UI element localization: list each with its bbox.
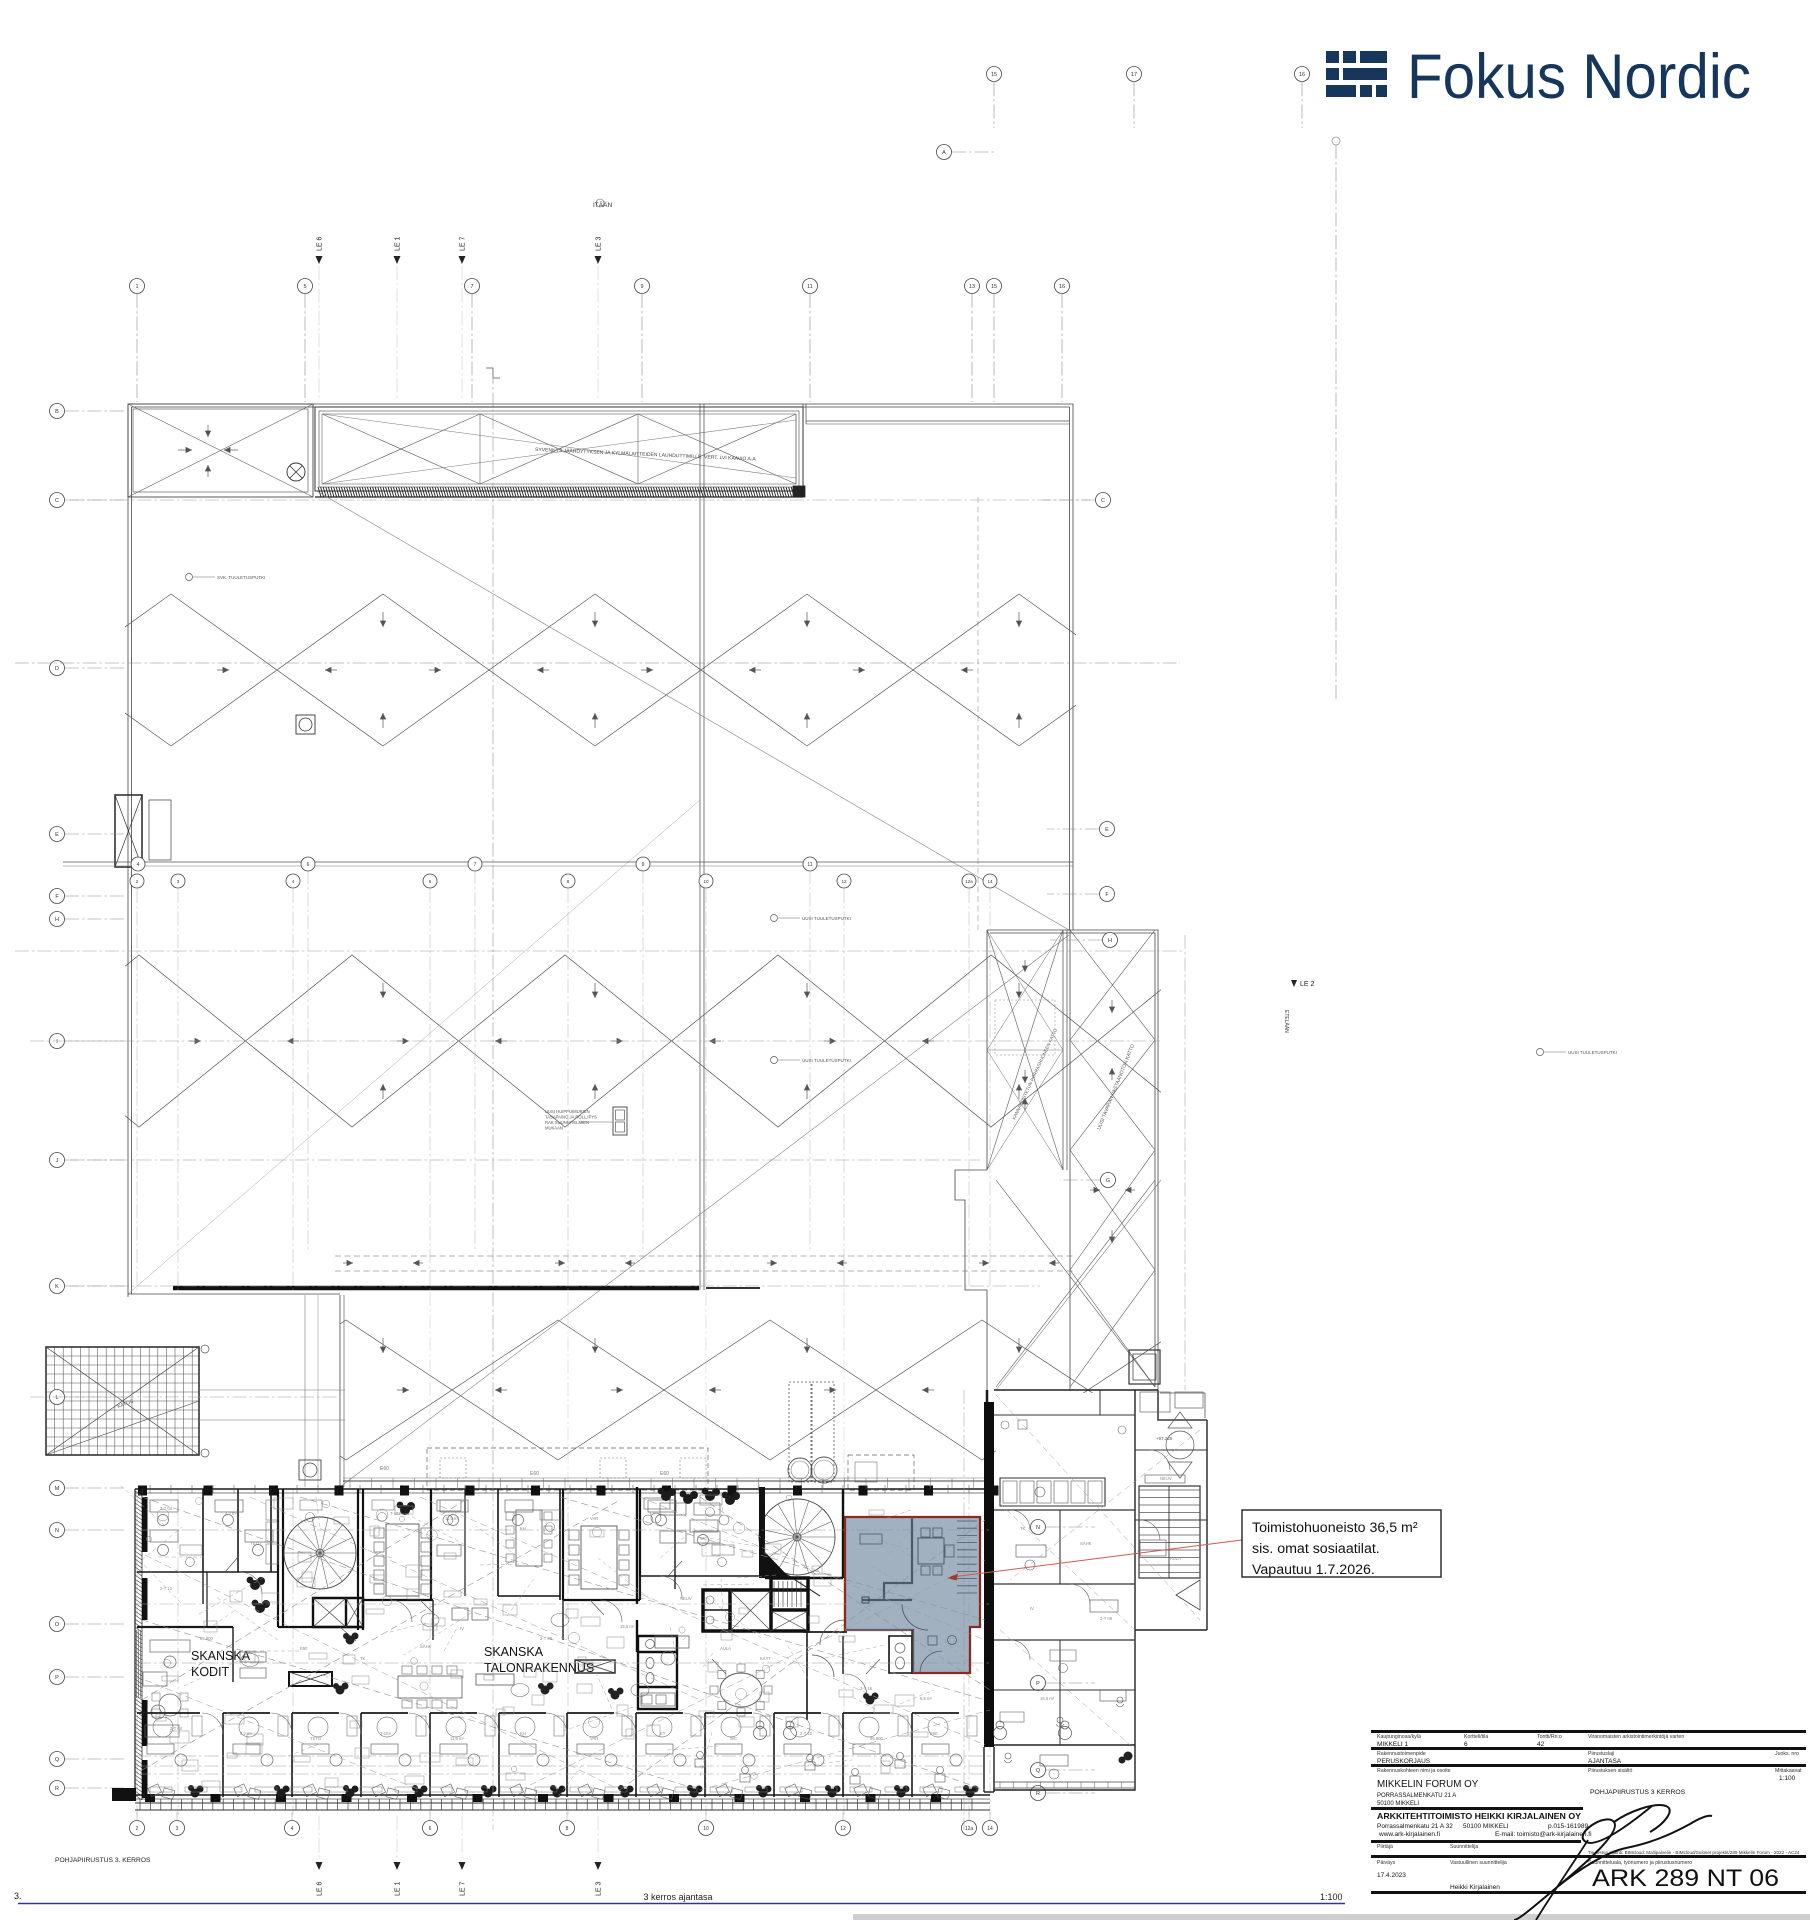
- svg-text:E90: E90: [300, 1646, 308, 1651]
- svg-text:2: 2: [136, 1826, 139, 1832]
- svg-text:ET: ET: [660, 1731, 666, 1736]
- svg-text:SÄHK: SÄHK: [420, 1644, 432, 1649]
- svg-text:1: 1: [135, 284, 138, 290]
- svg-text:3: 3: [177, 879, 180, 884]
- svg-text:Rakennuskohteen nimi ja osoite: Rakennuskohteen nimi ja osoite: [1377, 1768, 1451, 1774]
- svg-text:VAR: VAR: [590, 1516, 598, 1521]
- svg-text:PORRASSALMENKATU 21 A: PORRASSALMENKATU 21 A: [1377, 1793, 1456, 1799]
- svg-text:2: 2: [136, 879, 139, 884]
- svg-text:Juoks. nro: Juoks. nro: [1775, 1751, 1799, 1757]
- svg-text:SVK. TUULETUSPUTKI: SVK. TUULETUSPUTKI: [217, 575, 265, 580]
- svg-text:MIKKELIN FORUM OY: MIKKELIN FORUM OY: [1377, 1779, 1479, 1790]
- svg-text:95.800: 95.800: [870, 1736, 883, 1741]
- svg-text:E60: E60: [530, 1471, 539, 1477]
- svg-text:LE 1: LE 1: [395, 1881, 402, 1896]
- svg-text:C: C: [55, 498, 59, 504]
- svg-text:AULA: AULA: [1170, 1556, 1181, 1561]
- svg-text:15,5 m²: 15,5 m²: [1040, 1696, 1055, 1701]
- svg-text:15,5 m²: 15,5 m²: [620, 1624, 635, 1629]
- svg-text:LE 7: LE 7: [460, 236, 467, 251]
- svg-text:4: 4: [137, 862, 140, 868]
- svg-text:sis. omat sosiaatilat.: sis. omat sosiaatilat.: [1252, 1541, 1380, 1557]
- svg-text:T-103: T-103: [390, 1511, 401, 1516]
- svg-text:ARKKITEHTITOIMISTO HEIKKI KIRJ: ARKKITEHTITOIMISTO HEIKKI KIRJALAINEN OY: [1377, 1812, 1582, 1821]
- svg-text:MIKKELI 1: MIKKELI 1: [1377, 1741, 1408, 1748]
- svg-text:LE 6: LE 6: [317, 236, 324, 251]
- svg-text:UUSI TUULETUSPUTKI: UUSI TUULETUSPUTKI: [802, 916, 851, 921]
- svg-text:TSTO: TSTO: [310, 1736, 322, 1741]
- svg-text:Rakennustoimenpide: Rakennustoimenpide: [1377, 1751, 1426, 1757]
- svg-text:TASAPAINO JA ROLL.IPYS: TASAPAINO JA ROLL.IPYS: [545, 1115, 597, 1120]
- svg-text:E90: E90: [930, 1731, 938, 1736]
- svg-text:G: G: [1106, 1178, 1110, 1184]
- svg-text:2-T 16: 2-T 16: [860, 1686, 873, 1691]
- svg-text:10: 10: [703, 879, 709, 884]
- svg-text:14: 14: [987, 1826, 993, 1832]
- svg-text:4: 4: [291, 1826, 294, 1832]
- svg-text:Toimistohuoneisto 36,5 m²: Toimistohuoneisto 36,5 m²: [1252, 1520, 1418, 1536]
- svg-text:C: C: [1101, 498, 1105, 504]
- svg-text:16: 16: [1299, 72, 1305, 78]
- svg-text:D: D: [55, 666, 59, 672]
- svg-text:+97.225: +97.225: [1156, 1436, 1173, 1441]
- svg-text:Vastuullinen suunnittelija: Vastuullinen suunnittelija: [1450, 1860, 1507, 1866]
- svg-text:2-T 12: 2-T 12: [800, 1731, 813, 1736]
- svg-text:M: M: [55, 1486, 60, 1492]
- svg-text:T-103: T-103: [380, 1731, 391, 1736]
- svg-text:Piirustuksen sisältö: Piirustuksen sisältö: [1588, 1768, 1633, 1774]
- svg-text:2-T 04: 2-T 04: [170, 1726, 183, 1731]
- svg-text:42: 42: [1537, 1741, 1545, 1748]
- svg-text:Tiedoston sijainti: BIMcloud:: Tiedoston sijainti: BIMcloud: Mallipalve…: [1588, 1850, 1800, 1855]
- svg-text:6: 6: [1464, 1741, 1468, 1748]
- svg-text:Viranomaisten arkistointimerki: Viranomaisten arkistointimerkintöjä vart…: [1588, 1734, 1684, 1740]
- svg-text:Q: Q: [1036, 1768, 1041, 1774]
- svg-text:SÄHK: SÄHK: [1080, 1541, 1092, 1546]
- svg-text:UUSI HUIPPUIMURIEN: UUSI HUIPPUIMURIEN: [545, 1109, 590, 1114]
- svg-text:KÄYT: KÄYT: [760, 1656, 771, 1661]
- svg-text:12: 12: [840, 1826, 846, 1832]
- svg-text:2-T 08: 2-T 08: [540, 1636, 553, 1641]
- svg-text:10: 10: [703, 1826, 709, 1832]
- svg-text:KH: KH: [520, 1731, 526, 1736]
- svg-text:AULA: AULA: [720, 1646, 731, 1651]
- svg-text:TK: TK: [360, 1656, 366, 1661]
- svg-text:O: O: [55, 1622, 60, 1628]
- svg-text:P: P: [1036, 1681, 1040, 1687]
- svg-text:Suunnittelija: Suunnittelija: [1450, 1844, 1478, 1850]
- svg-text:6: 6: [429, 1826, 432, 1832]
- svg-text:VAR: VAR: [590, 1736, 598, 1741]
- svg-text:6: 6: [429, 879, 432, 884]
- svg-text:Tontti/Rn:o: Tontti/Rn:o: [1537, 1734, 1562, 1740]
- svg-text:LE 1: LE 1: [395, 236, 402, 251]
- svg-text:Piirustuslaji: Piirustuslaji: [1588, 1751, 1614, 1757]
- svg-text:IV: IV: [1030, 1606, 1034, 1611]
- svg-text:UUSI TUULETUSPUTKI: UUSI TUULETUSPUTKI: [802, 1058, 851, 1063]
- svg-text:17.4.2023: 17.4.2023: [1377, 1872, 1406, 1879]
- svg-text:LE 6: LE 6: [317, 1881, 324, 1896]
- svg-text:5: 5: [303, 284, 306, 290]
- svg-text:H: H: [1108, 938, 1112, 944]
- svg-text:Päiväys: Päiväys: [1377, 1860, 1396, 1866]
- svg-text:Porrassalmenkatu 21 A 32: Porrassalmenkatu 21 A 32: [1377, 1823, 1453, 1830]
- svg-text:16: 16: [1059, 284, 1065, 290]
- svg-text:8: 8: [567, 879, 570, 884]
- svg-text:N: N: [1036, 1525, 1040, 1531]
- svg-text:11,5 m²: 11,5 m²: [445, 1516, 459, 1521]
- svg-text:4: 4: [292, 879, 295, 884]
- svg-text:LE 7: LE 7: [460, 1881, 467, 1896]
- svg-text:9: 9: [642, 862, 645, 868]
- svg-text:PERUSKORJAUS: PERUSKORJAUS: [1377, 1758, 1431, 1765]
- svg-text:B: B: [55, 409, 59, 415]
- svg-text:RAK SUUNNITELMIEN: RAK SUUNNITELMIEN: [545, 1120, 589, 1125]
- svg-text:KH: KH: [520, 1526, 526, 1531]
- svg-text:3: 3: [176, 1826, 179, 1832]
- svg-text:WC: WC: [730, 1736, 737, 1741]
- svg-text:NEUV: NEUV: [680, 1596, 692, 1601]
- svg-text:8: 8: [566, 1826, 569, 1832]
- svg-text:Kortteli/tila: Kortteli/tila: [1464, 1734, 1488, 1740]
- svg-text:15: 15: [991, 284, 997, 290]
- svg-text:2-T 12: 2-T 12: [160, 1586, 173, 1591]
- svg-text:Mittakaavat: Mittakaavat: [1775, 1768, 1802, 1774]
- svg-text:MUKAAN: MUKAAN: [545, 1126, 563, 1131]
- svg-text:TSTO: TSTO: [250, 1541, 262, 1546]
- svg-text:11,5 m²: 11,5 m²: [450, 1736, 464, 1741]
- svg-text:ETELÄÄN: ETELÄÄN: [1283, 1010, 1290, 1033]
- svg-text:4,2 m²: 4,2 m²: [240, 1731, 252, 1736]
- svg-text:3 kerros ajantasa: 3 kerros ajantasa: [643, 1892, 712, 1902]
- svg-text:Vapautuu 1.7.2026.: Vapautuu 1.7.2026.: [1252, 1562, 1375, 1578]
- svg-text:9: 9: [640, 284, 643, 290]
- svg-text:H: H: [55, 917, 59, 923]
- svg-text:E-mail: toimisto@ark-kirjalain: E-mail: toimisto@ark-kirjalainen.fi: [1495, 1831, 1592, 1838]
- svg-text:L: L: [55, 1395, 58, 1401]
- svg-text:3.: 3.: [14, 1891, 22, 1901]
- svg-text:50100 MIKKELI: 50100 MIKKELI: [1463, 1823, 1509, 1830]
- svg-text:15: 15: [991, 72, 997, 78]
- svg-text:95.800: 95.800: [200, 1636, 213, 1641]
- svg-text:E60: E60: [380, 1466, 389, 1472]
- svg-text:13: 13: [969, 284, 975, 290]
- svg-text:4,2 m²: 4,2 m²: [225, 1511, 237, 1516]
- svg-text:R: R: [1036, 1791, 1040, 1797]
- svg-text:Heikki Kirjalainen: Heikki Kirjalainen: [1450, 1884, 1500, 1891]
- svg-text:Fokus Nordic: Fokus Nordic: [1407, 42, 1751, 112]
- svg-text:POHJAPIIRUSTUS 3. KERROS: POHJAPIIRUSTUS 3. KERROS: [55, 1857, 151, 1864]
- svg-text:8,5 m²: 8,5 m²: [920, 1696, 932, 1701]
- svg-text:Kaupunginosa/kylä: Kaupunginosa/kylä: [1377, 1734, 1421, 1740]
- svg-text:K: K: [55, 1284, 59, 1290]
- svg-text:12a: 12a: [965, 1826, 974, 1832]
- svg-text:7: 7: [474, 862, 477, 868]
- svg-text:ET: ET: [650, 1511, 656, 1516]
- svg-text:www.ark-kirjalainen.fi: www.ark-kirjalainen.fi: [1378, 1831, 1440, 1838]
- svg-text:2-T 08: 2-T 08: [1100, 1616, 1113, 1621]
- svg-text:N: N: [55, 1528, 59, 1534]
- svg-text:AJANTASA: AJANTASA: [1588, 1758, 1622, 1765]
- svg-text:KODIT: KODIT: [191, 1665, 230, 1679]
- svg-text:UUSI TUULETUSPUTKI: UUSI TUULETUSPUTKI: [1568, 1050, 1617, 1055]
- svg-text:IV: IV: [460, 1626, 464, 1631]
- svg-text:Q: Q: [55, 1757, 60, 1763]
- svg-text:1:100: 1:100: [1779, 1775, 1796, 1782]
- svg-text:1:100: 1:100: [1320, 1892, 1343, 1902]
- svg-text:7: 7: [470, 284, 473, 290]
- svg-text:POHJAPIIRUSTUS 3 KERROS: POHJAPIIRUSTUS 3 KERROS: [1590, 1789, 1686, 1796]
- svg-text:LE 2: LE 2: [1300, 981, 1315, 988]
- svg-text:P: P: [55, 1675, 59, 1681]
- svg-text:E: E: [1105, 827, 1109, 833]
- svg-text:11: 11: [807, 862, 812, 868]
- svg-text:Piirtäjä: Piirtäjä: [1377, 1844, 1393, 1850]
- svg-text:LE 3: LE 3: [596, 1881, 603, 1896]
- svg-text:A: A: [942, 150, 946, 156]
- svg-text:WC: WC: [700, 1536, 707, 1541]
- svg-text:17: 17: [1131, 72, 1137, 78]
- svg-text:NEUV: NEUV: [1160, 1476, 1172, 1481]
- svg-text:E60: E60: [660, 1471, 669, 1477]
- svg-text:TK: TK: [1020, 1526, 1026, 1531]
- svg-text:12: 12: [841, 879, 847, 884]
- svg-text:6: 6: [307, 862, 310, 868]
- svg-text:LE 3: LE 3: [596, 236, 603, 251]
- svg-text:12a: 12a: [965, 879, 973, 884]
- svg-text:R: R: [55, 1786, 59, 1792]
- svg-text:E: E: [55, 832, 59, 838]
- svg-text:50100 MIKKELI: 50100 MIKKELI: [1377, 1801, 1419, 1807]
- svg-text:14: 14: [987, 879, 993, 884]
- svg-text:ARK 289 NT 06: ARK 289 NT 06: [1592, 1865, 1779, 1892]
- svg-text:J: J: [56, 1158, 59, 1164]
- svg-text:p.015-161989: p.015-161989: [1548, 1823, 1589, 1830]
- svg-text:11: 11: [807, 284, 813, 290]
